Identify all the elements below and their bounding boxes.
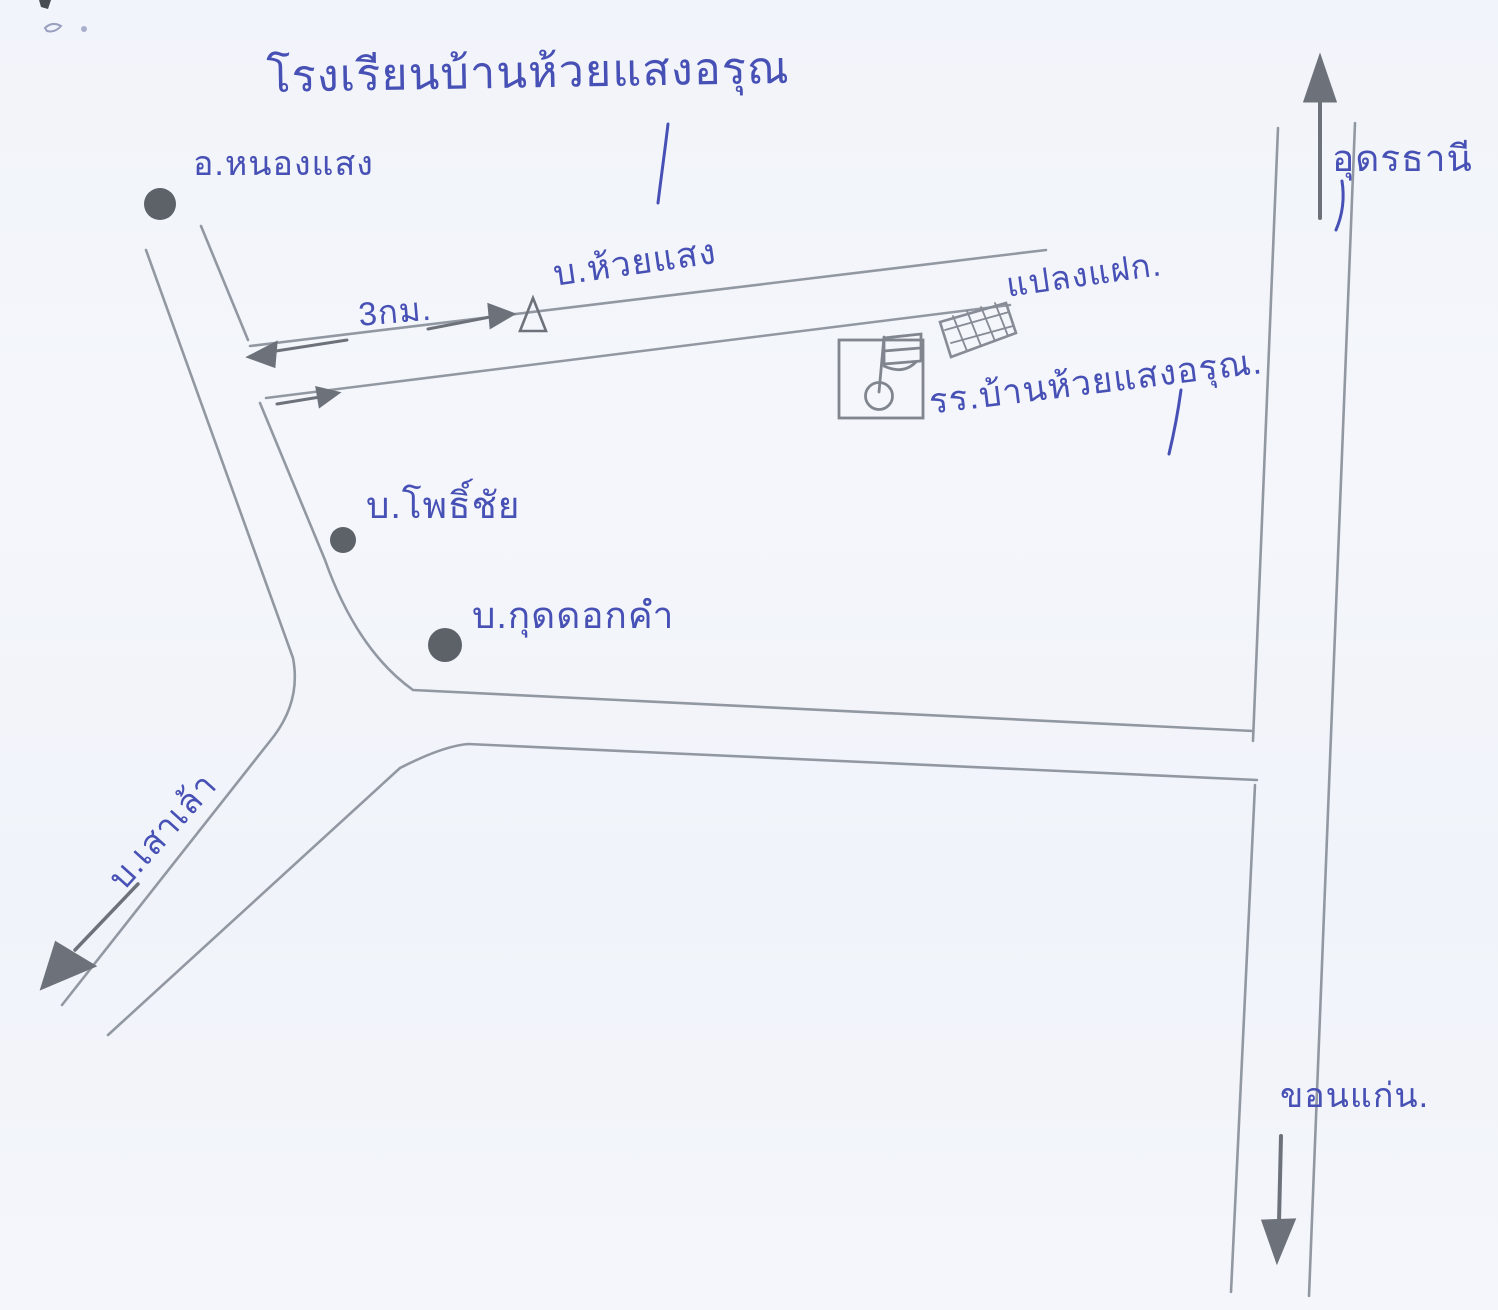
school-flag-icon	[839, 334, 923, 418]
khonkaen-arrow-shaft	[1279, 1136, 1281, 1222]
arrow-right-icon	[489, 305, 513, 327]
scan-smudges-group	[39, 0, 87, 32]
arrow-down-left-icon	[42, 943, 94, 988]
village-markers-group	[144, 188, 546, 662]
road-vertical-west-edge-upper	[1253, 128, 1278, 741]
label-ban-pho-chai: บ.โพธิ์ชัย	[366, 486, 520, 527]
school-label-flourish-stroke	[1169, 390, 1181, 454]
smudge-mark	[39, 0, 51, 9]
road-lower-north-edge	[260, 403, 1253, 731]
map-title: โรงเรียนบ้านห้วยแสงอรุณ	[266, 43, 790, 102]
arrow-down-icon	[1263, 1220, 1294, 1261]
roads-group	[62, 123, 1355, 1296]
map-canvas	[0, 0, 1498, 1310]
village-dot-nongsaeng	[144, 188, 176, 220]
road-lower-south-and-saolao-east-edge	[108, 744, 1257, 1035]
label-udon-thani: อุดรธานี	[1332, 139, 1473, 180]
road-vertical-west-edge-lower	[1231, 785, 1255, 1292]
hand-drawn-map-page: โรงเรียนบ้านห้วยแสงอรุณ อ.หนองแสง 3กม. บ…	[0, 0, 1498, 1310]
village-dot-phochai	[330, 527, 356, 553]
label-ban-kut-dok-kham: บ.กุดดอกคำ	[472, 596, 674, 637]
label-distance-3km: 3กม.	[357, 291, 433, 334]
road-direction-arrow-shaft	[277, 397, 320, 404]
village-dot-kutdokkham	[428, 628, 462, 662]
smudge-scribble	[45, 24, 61, 32]
arrow-up-icon	[1305, 57, 1335, 101]
label-district-nongsaeng: อ.หนองแสง	[193, 146, 374, 183]
road-nongsaeng-and-saolao-west-edge	[62, 250, 295, 1005]
road-vertical-east-edge	[1309, 123, 1355, 1296]
udon-label-flourish-stroke	[1336, 181, 1343, 230]
label-khon-kaen: ขอนแก่น.	[1280, 1078, 1429, 1115]
title-flourish-stroke	[658, 124, 668, 203]
smudge-dot	[81, 26, 87, 32]
road-nongsaeng-east-edge	[201, 226, 248, 340]
flag-banner-line	[884, 348, 920, 351]
village-triangle-icon	[520, 298, 546, 331]
